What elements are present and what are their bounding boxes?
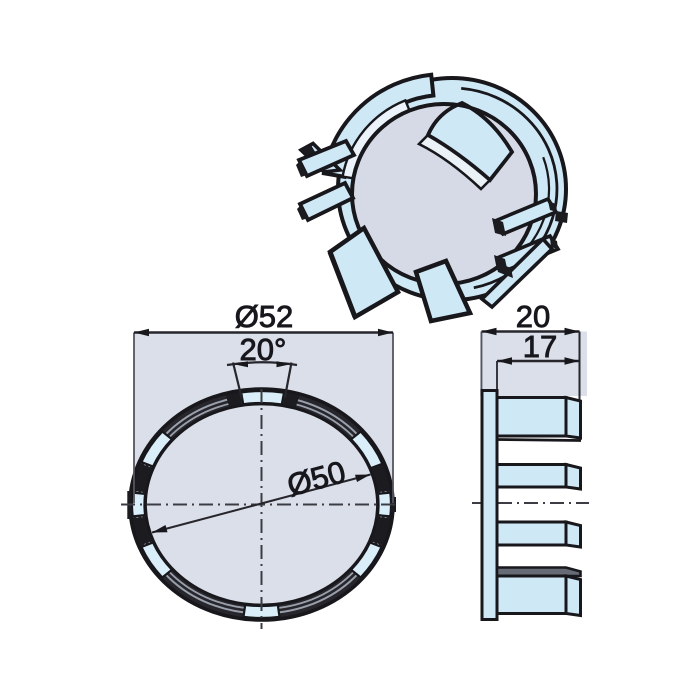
svg-text:Ø52: Ø52	[235, 299, 294, 334]
svg-text:20°: 20°	[240, 332, 287, 367]
svg-text:17: 17	[523, 329, 557, 364]
